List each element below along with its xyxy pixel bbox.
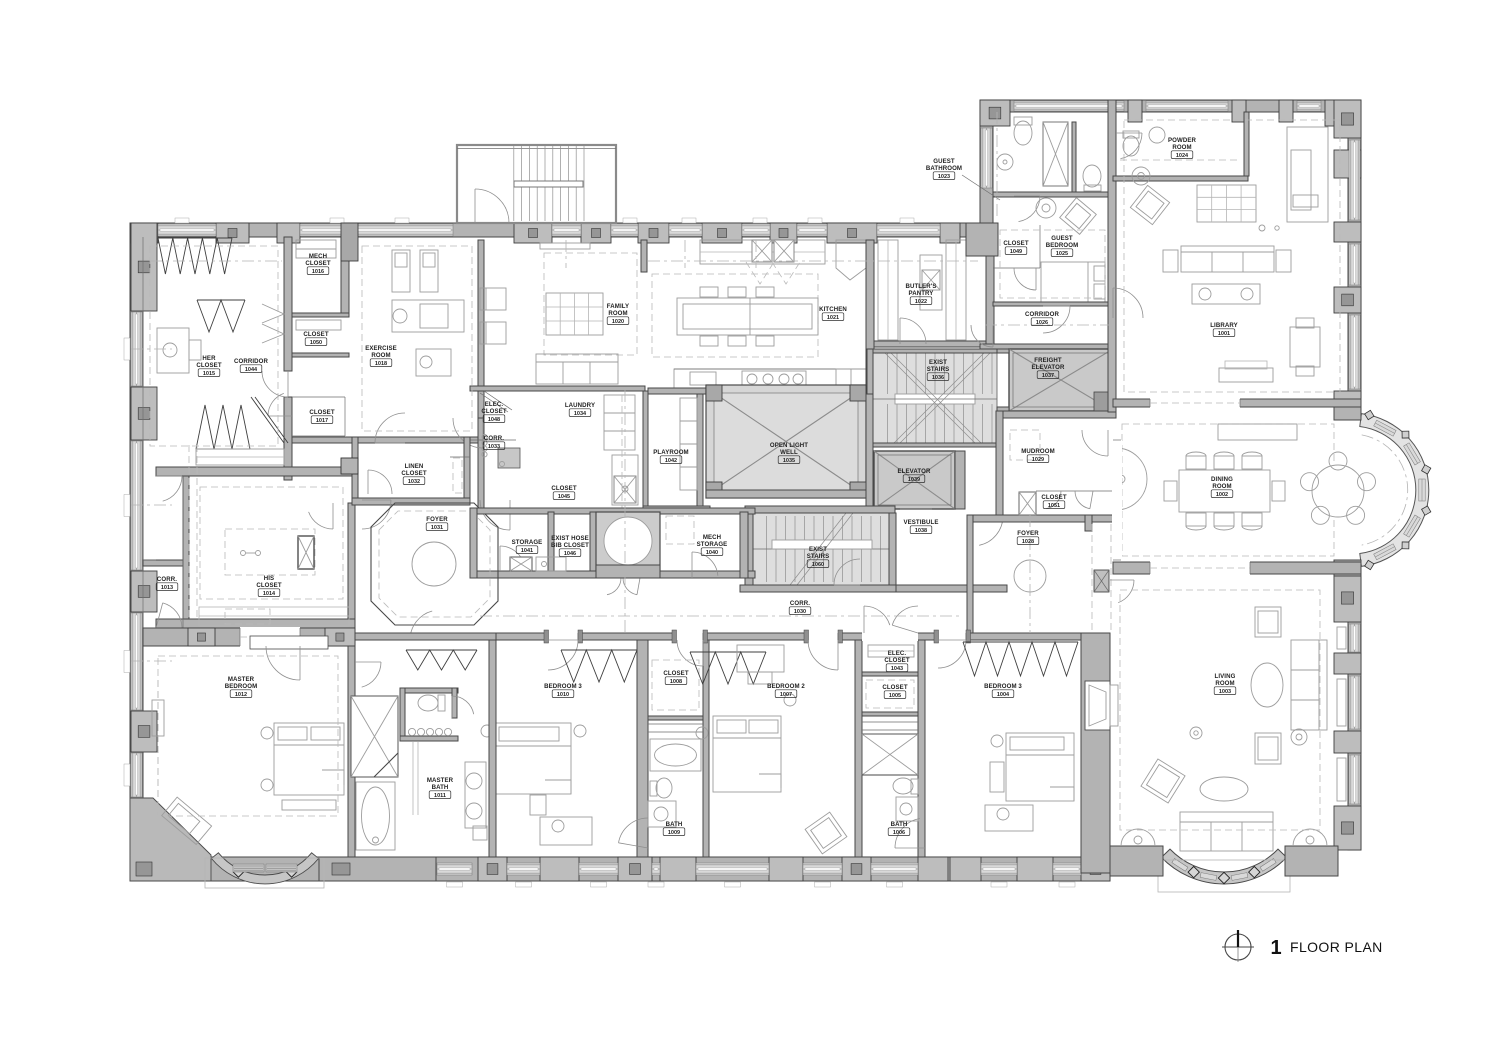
svg-text:STORAGE: STORAGE (697, 541, 728, 548)
svg-text:PANTRY: PANTRY (909, 290, 934, 297)
svg-text:1022: 1022 (915, 299, 927, 305)
svg-text:1034: 1034 (574, 411, 587, 417)
svg-text:1039: 1039 (908, 477, 920, 483)
svg-text:KITCHEN: KITCHEN (819, 306, 847, 313)
svg-text:1023: 1023 (938, 174, 950, 180)
svg-text:FOYER: FOYER (426, 516, 448, 523)
svg-text:EXIST: EXIST (929, 359, 947, 366)
svg-text:BEDROOM 3: BEDROOM 3 (544, 683, 582, 690)
svg-text:BATH: BATH (666, 821, 683, 828)
svg-text:WELL: WELL (780, 449, 798, 456)
svg-text:1051: 1051 (1048, 503, 1060, 509)
svg-text:1: 1 (1270, 937, 1281, 959)
svg-text:FLOOR PLAN: FLOOR PLAN (1290, 939, 1383, 955)
svg-text:1012: 1012 (235, 692, 247, 698)
svg-text:1005: 1005 (889, 693, 901, 699)
svg-text:1006: 1006 (893, 830, 905, 836)
svg-text:1018: 1018 (375, 361, 387, 367)
svg-text:1048: 1048 (488, 417, 500, 423)
svg-text:CLOSET: CLOSET (663, 670, 688, 677)
svg-text:MUDROOM: MUDROOM (1021, 448, 1055, 455)
svg-text:1015: 1015 (203, 371, 215, 377)
svg-text:CORR.: CORR. (790, 600, 810, 607)
svg-text:STAIRS: STAIRS (807, 553, 830, 560)
svg-text:1001: 1001 (1218, 331, 1230, 337)
svg-text:1038: 1038 (915, 528, 927, 534)
svg-text:CLOSET: CLOSET (309, 409, 334, 416)
svg-text:1014: 1014 (263, 591, 276, 597)
svg-text:ROOM: ROOM (371, 352, 390, 359)
svg-text:FREIGHT: FREIGHT (1034, 357, 1062, 364)
svg-text:1049: 1049 (1010, 249, 1022, 255)
svg-text:GUEST: GUEST (1051, 235, 1073, 242)
svg-text:BEDROOM: BEDROOM (1046, 242, 1079, 249)
svg-text:ROOM: ROOM (1215, 680, 1234, 687)
svg-text:ELEC.: ELEC. (485, 401, 504, 408)
svg-text:1026: 1026 (1036, 320, 1048, 326)
svg-text:FAMILY: FAMILY (607, 303, 629, 310)
svg-text:1007: 1007 (780, 692, 792, 698)
svg-text:STORAGE: STORAGE (512, 539, 543, 546)
svg-text:1042: 1042 (665, 458, 677, 464)
svg-text:1016: 1016 (312, 269, 324, 275)
svg-text:CLOSET: CLOSET (1041, 494, 1066, 501)
svg-text:CLOSET: CLOSET (305, 260, 330, 267)
svg-text:BEDROOM: BEDROOM (225, 683, 258, 690)
svg-text:STAIRS: STAIRS (927, 366, 950, 373)
svg-text:CORRIDOR: CORRIDOR (1025, 311, 1059, 318)
svg-text:1021: 1021 (827, 315, 839, 321)
svg-text:1029: 1029 (1032, 457, 1044, 463)
svg-text:CLOSET: CLOSET (401, 470, 426, 477)
svg-text:1024: 1024 (1176, 153, 1189, 159)
svg-text:BATHROOM: BATHROOM (926, 165, 962, 172)
svg-text:LIVING: LIVING (1215, 673, 1236, 680)
svg-text:VESTIBULE: VESTIBULE (903, 519, 938, 526)
svg-text:ELEVATOR: ELEVATOR (898, 468, 931, 475)
svg-text:1044: 1044 (245, 367, 258, 373)
svg-text:CLOSET: CLOSET (884, 657, 909, 664)
svg-text:BUTLER'S: BUTLER'S (905, 283, 936, 290)
svg-text:MASTER: MASTER (427, 777, 454, 784)
svg-text:1013: 1013 (161, 585, 173, 591)
svg-text:HIS: HIS (264, 575, 274, 582)
svg-text:1036: 1036 (932, 375, 944, 381)
svg-text:CORRIDOR: CORRIDOR (234, 358, 268, 365)
svg-text:1030: 1030 (794, 609, 806, 615)
svg-text:EXIST: EXIST (809, 546, 827, 553)
svg-text:CORR.: CORR. (484, 435, 504, 442)
svg-text:BEDROOM 2: BEDROOM 2 (767, 683, 805, 690)
svg-text:OPEN LIGHT: OPEN LIGHT (770, 442, 808, 449)
svg-text:CLOSET: CLOSET (481, 408, 506, 415)
svg-text:1017: 1017 (316, 418, 328, 424)
svg-text:EXERCISE: EXERCISE (365, 345, 397, 352)
svg-text:POWDER: POWDER (1168, 137, 1197, 144)
svg-text:1043: 1043 (891, 666, 903, 672)
svg-text:1046: 1046 (564, 551, 576, 557)
svg-text:BATH: BATH (432, 784, 449, 791)
svg-text:LINEN: LINEN (405, 463, 424, 470)
svg-text:1003: 1003 (1219, 689, 1231, 695)
svg-text:CLOSET: CLOSET (196, 362, 221, 369)
svg-text:1008: 1008 (670, 679, 682, 685)
svg-text:1010: 1010 (557, 692, 569, 698)
svg-text:EXIST HOSE: EXIST HOSE (551, 535, 589, 542)
svg-text:ELEVATOR: ELEVATOR (1032, 364, 1065, 371)
svg-text:1011: 1011 (434, 793, 446, 799)
svg-text:CORR.: CORR. (157, 576, 177, 583)
svg-text:1037: 1037 (1042, 373, 1054, 379)
svg-text:CLOSET: CLOSET (256, 582, 281, 589)
svg-text:ROOM: ROOM (1172, 144, 1191, 151)
svg-text:HER: HER (202, 355, 216, 362)
svg-text:CLOSET: CLOSET (882, 684, 907, 691)
svg-text:ELEC.: ELEC. (888, 650, 907, 657)
svg-text:PLAYROOM: PLAYROOM (653, 449, 688, 456)
svg-text:DINING: DINING (1211, 476, 1233, 483)
svg-text:1032: 1032 (408, 479, 420, 485)
svg-text:BIB CLOSET: BIB CLOSET (551, 542, 589, 549)
svg-text:ROOM: ROOM (608, 310, 627, 317)
svg-text:MECH: MECH (703, 534, 721, 541)
svg-text:BATH: BATH (891, 821, 908, 828)
svg-text:1020: 1020 (612, 319, 624, 325)
svg-text:FOYER: FOYER (1017, 530, 1039, 537)
svg-text:CLOSET: CLOSET (1003, 240, 1028, 247)
svg-text:BEDROOM 3: BEDROOM 3 (984, 683, 1022, 690)
svg-text:CLOSET: CLOSET (303, 331, 328, 338)
svg-text:1028: 1028 (1022, 539, 1034, 545)
svg-text:ROOM: ROOM (1212, 483, 1231, 490)
svg-text:LIBRARY: LIBRARY (1210, 322, 1238, 329)
svg-text:1050: 1050 (310, 340, 322, 346)
svg-text:1004: 1004 (997, 692, 1010, 698)
svg-text:1009: 1009 (668, 830, 680, 836)
svg-text:1025: 1025 (1056, 251, 1068, 257)
svg-text:1040: 1040 (706, 550, 718, 556)
svg-text:MASTER: MASTER (228, 676, 255, 683)
svg-text:1060: 1060 (812, 562, 824, 568)
svg-text:GUEST: GUEST (933, 158, 955, 165)
svg-text:1002: 1002 (1216, 492, 1228, 498)
svg-text:LAUNDRY: LAUNDRY (565, 402, 595, 409)
svg-text:MECH: MECH (309, 253, 327, 260)
svg-text:CLOSET: CLOSET (551, 485, 576, 492)
svg-text:1031: 1031 (431, 525, 443, 531)
svg-text:1033: 1033 (488, 444, 500, 450)
svg-text:1041: 1041 (521, 548, 533, 554)
svg-text:1045: 1045 (558, 494, 570, 500)
svg-text:1035: 1035 (783, 458, 795, 464)
